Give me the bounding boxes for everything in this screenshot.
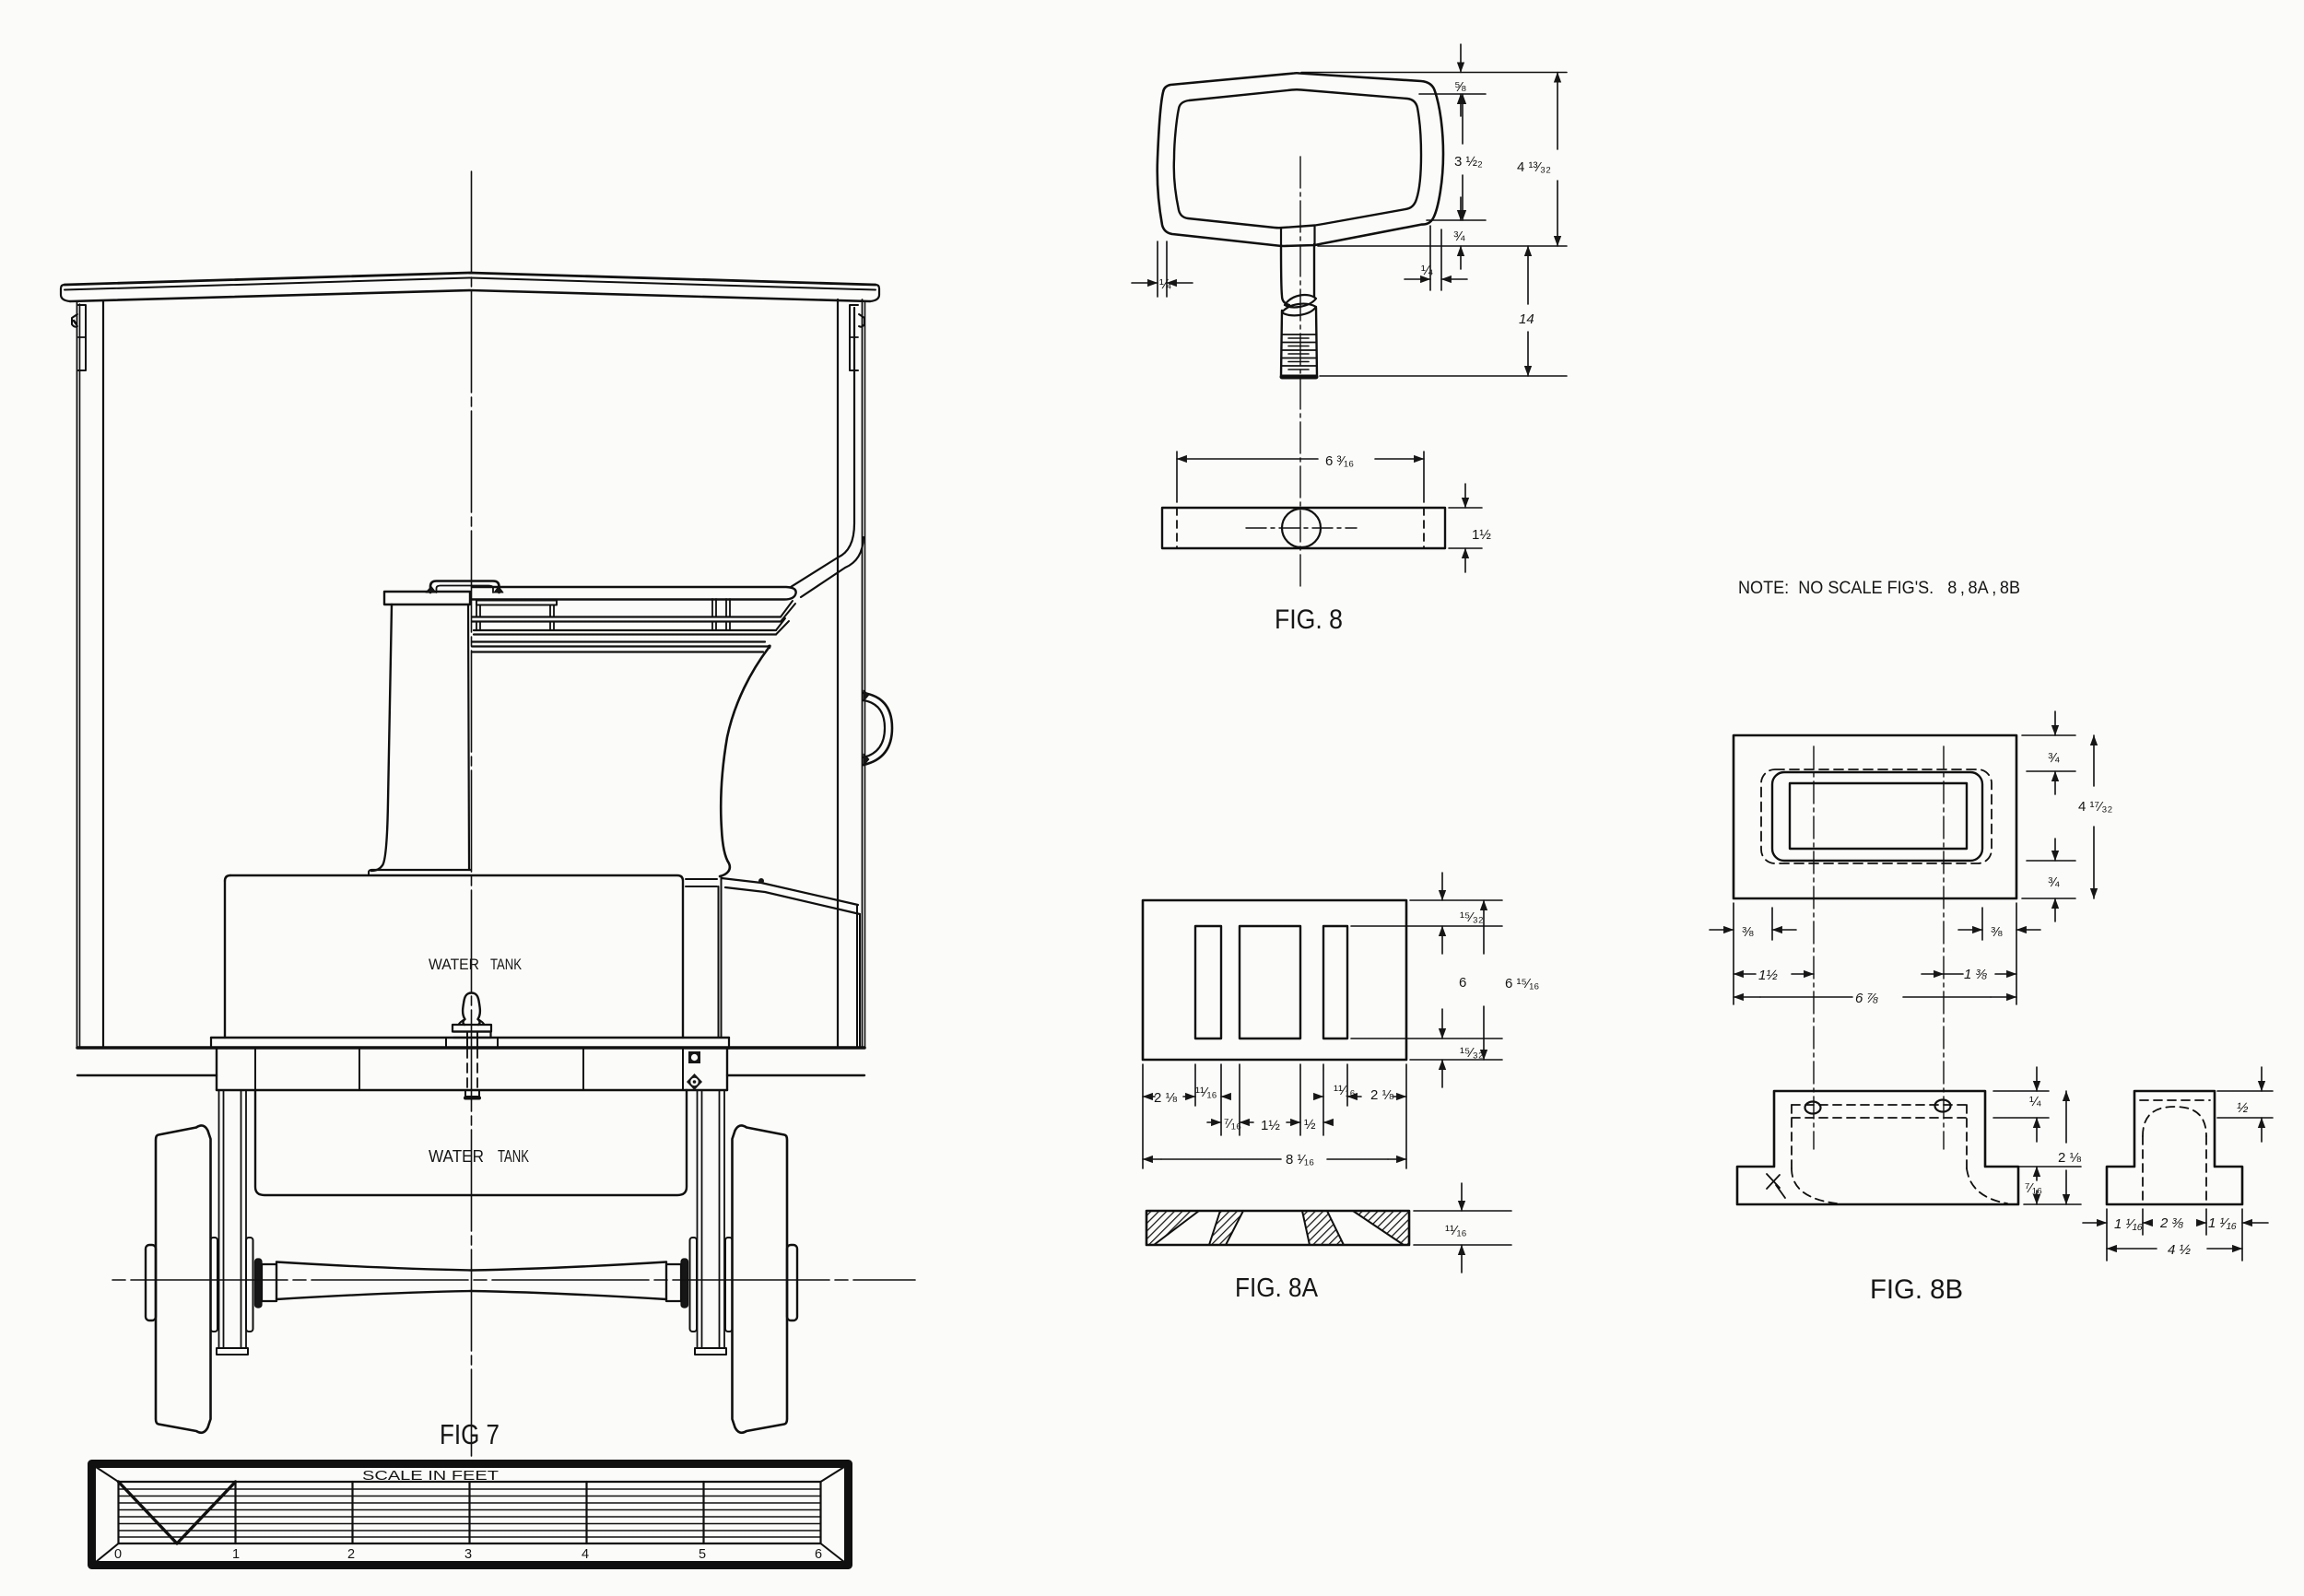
svg-text:6: 6 [815,1547,822,1562]
svg-text:½: ½ [2237,1100,2249,1116]
svg-text:⁷⁄₁₆: ⁷⁄₁₆ [2025,1180,2042,1196]
svg-text:3 ½₂: 3 ½₂ [1454,154,1483,170]
svg-text:2: 2 [347,1547,355,1562]
svg-text:6: 6 [1459,975,1466,991]
svg-text:2 ⅛: 2 ⅛ [2058,1150,2082,1166]
svg-text:TANK: TANK [498,1147,529,1166]
svg-text:2 ⅜: 2 ⅜ [2159,1215,2184,1231]
svg-text:FIG. 8A: FIG. 8A [1235,1273,1319,1303]
svg-text:6 ³⁄₁₆: 6 ³⁄₁₆ [1325,453,1354,469]
svg-text:6 ¹⁵⁄₁₆: 6 ¹⁵⁄₁₆ [1505,976,1539,992]
svg-text:WATER: WATER [429,956,479,973]
svg-text:⁷⁄₁₆: ⁷⁄₁₆ [1224,1116,1241,1132]
svg-text:1 ¹⁄₁₆: 1 ¹⁄₁₆ [2208,1215,2237,1231]
svg-text:¹⁵⁄₃₂: ¹⁵⁄₃₂ [1460,909,1484,925]
svg-text:¹¹⁄₁₆: ¹¹⁄₁₆ [1195,1085,1217,1100]
svg-text:NOTE: NO SCALE FIG'S. 8 , 8: NOTE: NO SCALE FIG'S. 8 , 8A , 8B [1738,579,2020,598]
svg-text:¹⁵⁄₃₂: ¹⁵⁄₃₂ [1460,1045,1484,1061]
svg-text:¼: ¼ [1159,276,1171,292]
svg-text:3: 3 [464,1547,472,1562]
svg-text:TANK: TANK [490,956,522,973]
svg-text:2 ⅛: 2 ⅛ [1370,1087,1394,1103]
svg-text:¼: ¼ [1421,263,1433,278]
svg-text:⅝: ⅝ [1454,79,1466,95]
svg-text:¹¹⁄₁₆: ¹¹⁄₁₆ [1334,1083,1356,1098]
svg-text:4 ½: 4 ½ [2168,1242,2192,1258]
svg-text:4: 4 [582,1547,589,1562]
svg-text:¼: ¼ [2029,1094,2041,1109]
svg-text:1½: 1½ [1261,1118,1280,1133]
svg-text:5: 5 [699,1547,706,1562]
svg-text:0: 0 [114,1547,122,1562]
svg-text:8 ¹⁄₁₆: 8 ¹⁄₁₆ [1286,1152,1314,1168]
svg-text:¾: ¾ [1453,229,1465,244]
svg-text:1: 1 [232,1547,240,1562]
svg-text:½: ½ [1304,1117,1316,1132]
svg-text:2 ⅛: 2 ⅛ [1154,1090,1178,1106]
svg-text:FIG. 8B: FIG. 8B [1870,1274,1963,1305]
svg-text:FIG 7: FIG 7 [440,1418,500,1450]
svg-text:4 ¹³⁄₃₂: 4 ¹³⁄₃₂ [1517,159,1551,175]
svg-text:WATER: WATER [429,1147,484,1166]
svg-text:1½: 1½ [1758,968,1778,983]
svg-text:FIG. 8: FIG. 8 [1275,604,1343,635]
svg-text:14: 14 [1519,311,1534,327]
svg-text:⅜: ⅜ [1991,924,2003,940]
svg-text:6 ⅞: 6 ⅞ [1855,991,1879,1006]
svg-text:1 ¹⁄₁₆: 1 ¹⁄₁₆ [2114,1216,2143,1232]
svg-text:1 ⅜: 1 ⅜ [1964,967,1988,982]
svg-text:1½: 1½ [1472,527,1491,543]
svg-text:¾: ¾ [2048,750,2060,766]
svg-text:4 ¹⁷⁄₃₂: 4 ¹⁷⁄₃₂ [2078,799,2113,815]
svg-text:¾: ¾ [2048,874,2060,890]
svg-text:¹¹⁄₁₆: ¹¹⁄₁₆ [1445,1223,1467,1238]
svg-text:⅜: ⅜ [1742,924,1754,940]
